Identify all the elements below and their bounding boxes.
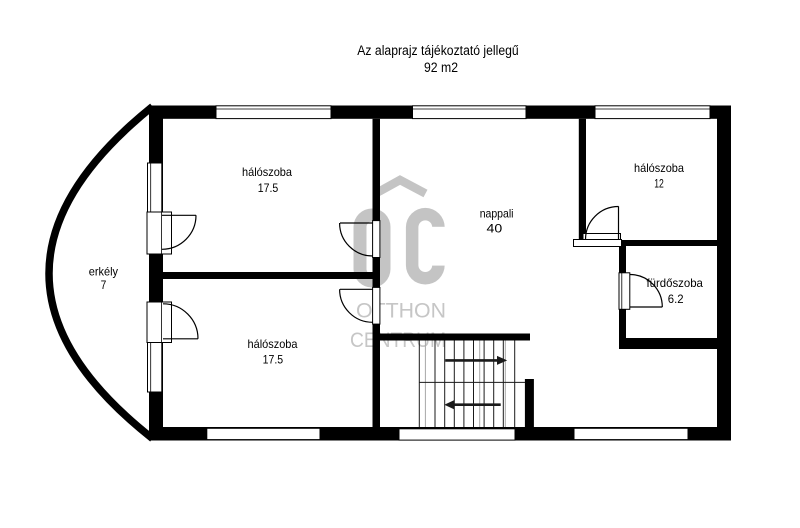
svg-text:12: 12	[654, 177, 664, 191]
svg-text:6.2: 6.2	[668, 292, 684, 306]
svg-text:Az alaprajz tájékoztató jelleg: Az alaprajz tájékoztató jellegű	[357, 43, 518, 58]
svg-text:7: 7	[101, 278, 107, 292]
svg-text:OTTHON: OTTHON	[356, 299, 446, 323]
svg-text:40: 40	[487, 222, 503, 236]
svg-text:erkély: erkély	[89, 265, 118, 279]
svg-text:fürdőszoba: fürdőszoba	[647, 276, 704, 290]
svg-text:nappali: nappali	[480, 207, 514, 221]
svg-text:92 m2: 92 m2	[424, 60, 458, 75]
svg-text:hálószoba: hálószoba	[634, 161, 684, 175]
svg-text:17.5: 17.5	[263, 353, 284, 367]
svg-text:hálószoba: hálószoba	[248, 337, 298, 351]
svg-text:17.5: 17.5	[258, 181, 279, 195]
svg-text:hálószoba: hálószoba	[242, 165, 292, 179]
